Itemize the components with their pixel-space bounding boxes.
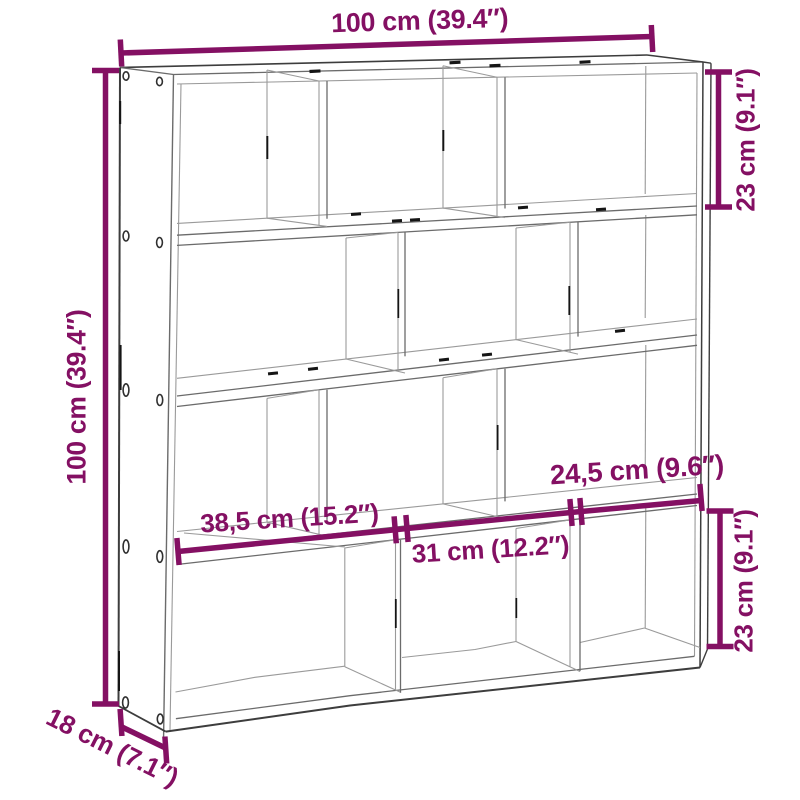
svg-text:23 cm (9.1″): 23 cm (9.1″): [729, 509, 759, 652]
svg-text:100 cm (39.4″): 100 cm (39.4″): [62, 310, 92, 485]
svg-text:23 cm (9.1″): 23 cm (9.1″): [731, 68, 761, 211]
svg-text:100 cm (39.4″): 100 cm (39.4″): [331, 3, 509, 39]
